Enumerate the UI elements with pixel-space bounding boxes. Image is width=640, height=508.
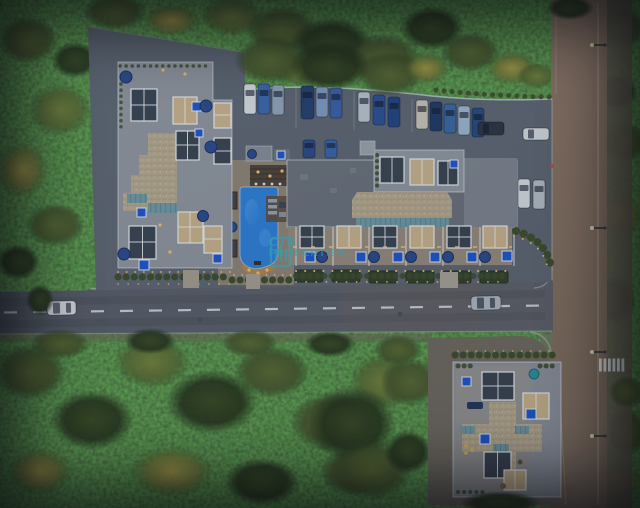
car [523, 128, 549, 140]
roof-shed [360, 141, 375, 155]
teal-umbrella [529, 369, 539, 379]
sidewalk-east [607, 0, 632, 508]
car [258, 84, 270, 114]
aerial-site-render: CIG PROPERTIES [0, 0, 640, 508]
pool-walkway [246, 274, 260, 289]
car [444, 104, 456, 133]
entry-walkway [183, 270, 199, 288]
rooftop-sofa [467, 402, 483, 409]
car [272, 85, 284, 115]
teal-gable [356, 218, 449, 227]
entry-walkway [440, 272, 458, 288]
developer-watermark: CIG PROPERTIES [269, 236, 346, 259]
car [358, 92, 370, 122]
car [458, 106, 470, 135]
car [518, 179, 530, 208]
southeast-building-area [428, 336, 561, 505]
southeast-building [453, 362, 561, 497]
amenity-pergola [250, 165, 290, 186]
car [430, 102, 442, 131]
car [416, 100, 428, 129]
building-logo-icon [269, 236, 293, 268]
car [388, 97, 400, 127]
car [244, 84, 256, 114]
car [303, 140, 315, 158]
car [471, 296, 501, 311]
car [330, 88, 342, 118]
car [478, 122, 504, 135]
gravel-roof-center [352, 192, 452, 218]
car [373, 95, 385, 125]
pool-loungers [266, 196, 288, 222]
fire-hydrant [550, 164, 554, 168]
car [301, 86, 314, 119]
car [533, 180, 545, 209]
car [316, 87, 328, 117]
car [325, 140, 337, 158]
